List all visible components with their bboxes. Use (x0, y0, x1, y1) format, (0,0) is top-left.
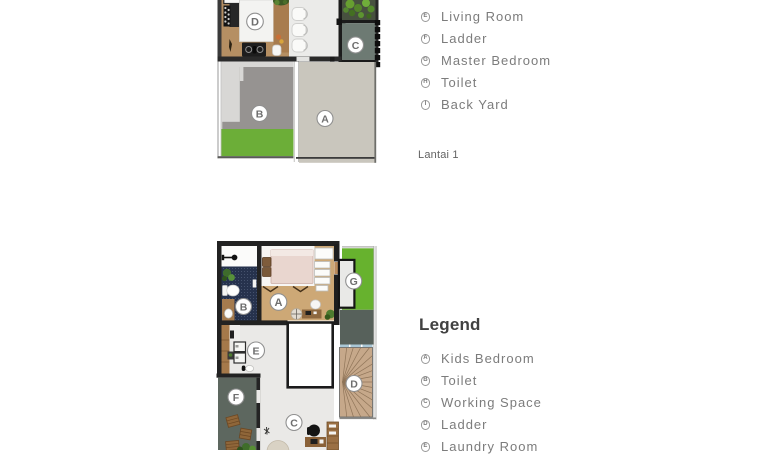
svg-text:C: C (290, 417, 298, 429)
svg-text:E: E (252, 345, 259, 357)
svg-text:F: F (233, 392, 240, 404)
svg-text:A: A (275, 297, 283, 309)
svg-text:A: A (321, 113, 329, 125)
svg-text:G: G (350, 276, 358, 288)
svg-text:D: D (350, 378, 358, 390)
svg-text:B: B (256, 108, 264, 120)
svg-text:C: C (352, 40, 360, 52)
svg-text:D: D (251, 16, 259, 28)
svg-text:B: B (240, 301, 248, 313)
